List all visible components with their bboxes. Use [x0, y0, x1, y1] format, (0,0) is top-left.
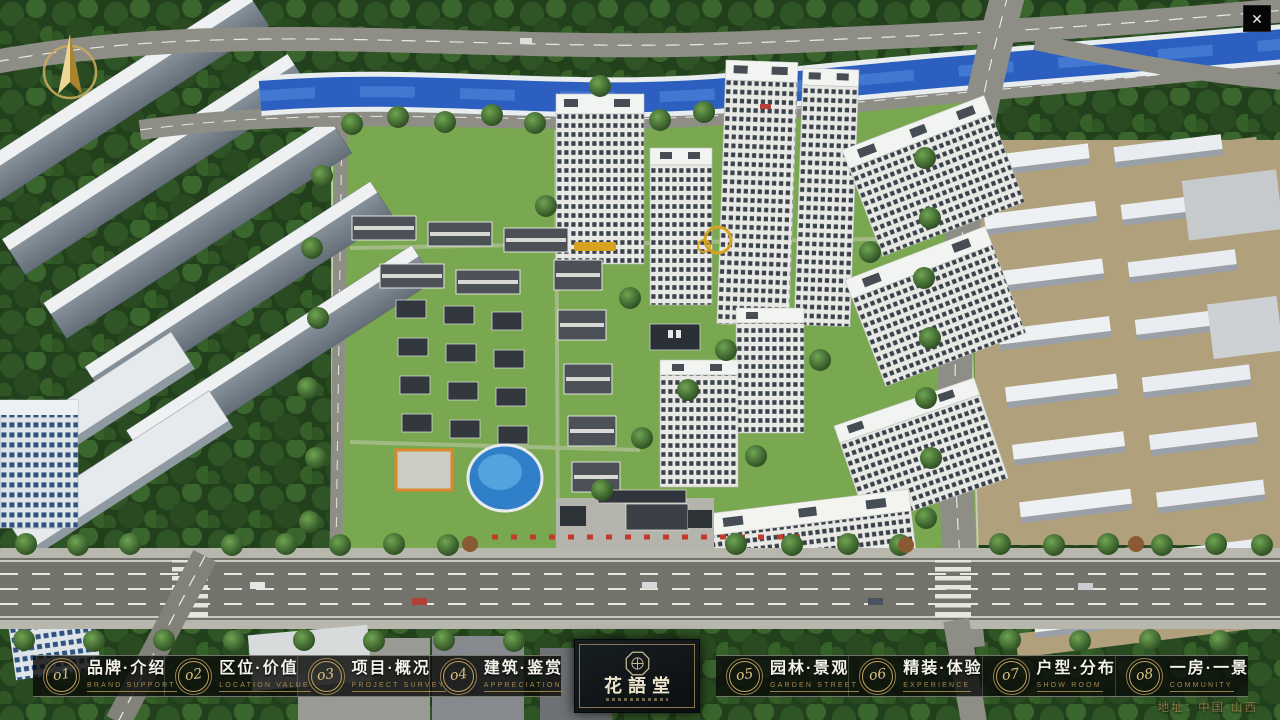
nav-item-label: 园林·景观 — [770, 660, 844, 678]
nav-item-label: 精装·体验 — [903, 660, 977, 678]
seal-icon — [625, 651, 650, 676]
logo-tagline-decoration — [606, 698, 668, 701]
entrance-plaza — [556, 490, 714, 554]
nav-item-label: 户型·分布 — [1037, 660, 1111, 678]
nav-item-sublabel: EXPERIENCE — [903, 680, 971, 692]
nav-item-number: o1 — [52, 666, 71, 684]
nav-item-sublabel: COMMUNITY — [1170, 680, 1234, 692]
nav-item-label: 品牌·介绍 — [87, 660, 160, 678]
kindergarten-building — [396, 450, 452, 490]
nav-item-number: o5 — [735, 666, 754, 684]
nav-item-sublabel: SHOW ROOM — [1037, 680, 1103, 692]
nav-item-sublabel: APPRECIATION — [484, 680, 563, 692]
nav-item-location[interactable]: o2 区位·价值LOCATION VALUE — [164, 656, 296, 696]
nav-item-interior[interactable]: o6 精装·体验EXPERIENCE — [848, 656, 981, 696]
logo-title: 花語堂 — [598, 678, 676, 696]
app-window: ✕ o1 品牌·介绍BRAND SUPPORT o2 区位·价值LOCATION… — [0, 0, 1280, 720]
nav-item-brand[interactable]: o1 品牌·介绍BRAND SUPPORT — [33, 656, 164, 696]
nav-item-label: 一房·一景 — [1170, 660, 1244, 678]
nav-item-number: o6 — [868, 666, 887, 684]
item-number-badge: o3 — [311, 661, 342, 692]
nav-item-number: o8 — [1135, 666, 1154, 684]
address-text: 地址：中国·山西 — [1158, 699, 1258, 715]
item-number-badge: o1 — [46, 661, 77, 692]
nav-item-architecture[interactable]: o4 建筑·鉴赏APPRECIATION — [429, 656, 561, 696]
nav-item-number: o7 — [1001, 666, 1020, 684]
item-number-badge: o8 — [1129, 661, 1160, 692]
close-button[interactable]: ✕ — [1243, 5, 1271, 32]
nav-item-sublabel: GARDEN STREET — [770, 680, 859, 692]
nav-item-project[interactable]: o3 项目·概况PROJECT SURVEY — [297, 656, 429, 696]
nav-group-right: o5 园林·景观GARDEN STREET o6 精装·体验EXPERIENCE… — [716, 655, 1248, 697]
nav-item-label: 项目·概况 — [352, 660, 425, 678]
logo-panel[interactable]: 花語堂 — [574, 639, 700, 713]
item-number-badge: o2 — [178, 661, 209, 692]
nav-item-floorplan[interactable]: o7 户型·分布SHOW ROOM — [982, 656, 1115, 696]
nav-item-label: 区位·价值 — [219, 660, 292, 678]
nav-item-number: o3 — [316, 666, 335, 684]
item-number-badge: o7 — [996, 661, 1027, 692]
nav-item-community[interactable]: o8 一房·一景COMMUNITY — [1115, 656, 1248, 696]
site-plan-render — [0, 0, 1280, 720]
nav-group-left: o1 品牌·介绍BRAND SUPPORT o2 区位·价值LOCATION V… — [33, 655, 561, 697]
pool — [468, 445, 542, 511]
nav-item-label: 建筑·鉴赏 — [484, 660, 557, 678]
item-number-badge: o6 — [862, 661, 893, 692]
item-number-badge: o4 — [443, 661, 474, 692]
nav-item-garden[interactable]: o5 园林·景观GARDEN STREET — [716, 656, 848, 696]
central-pavilion — [650, 324, 700, 350]
item-number-badge: o5 — [729, 661, 760, 692]
logo-inner-frame: 花語堂 — [579, 644, 695, 708]
nav-item-number: o4 — [449, 666, 468, 684]
nav-item-number: o2 — [184, 666, 203, 684]
